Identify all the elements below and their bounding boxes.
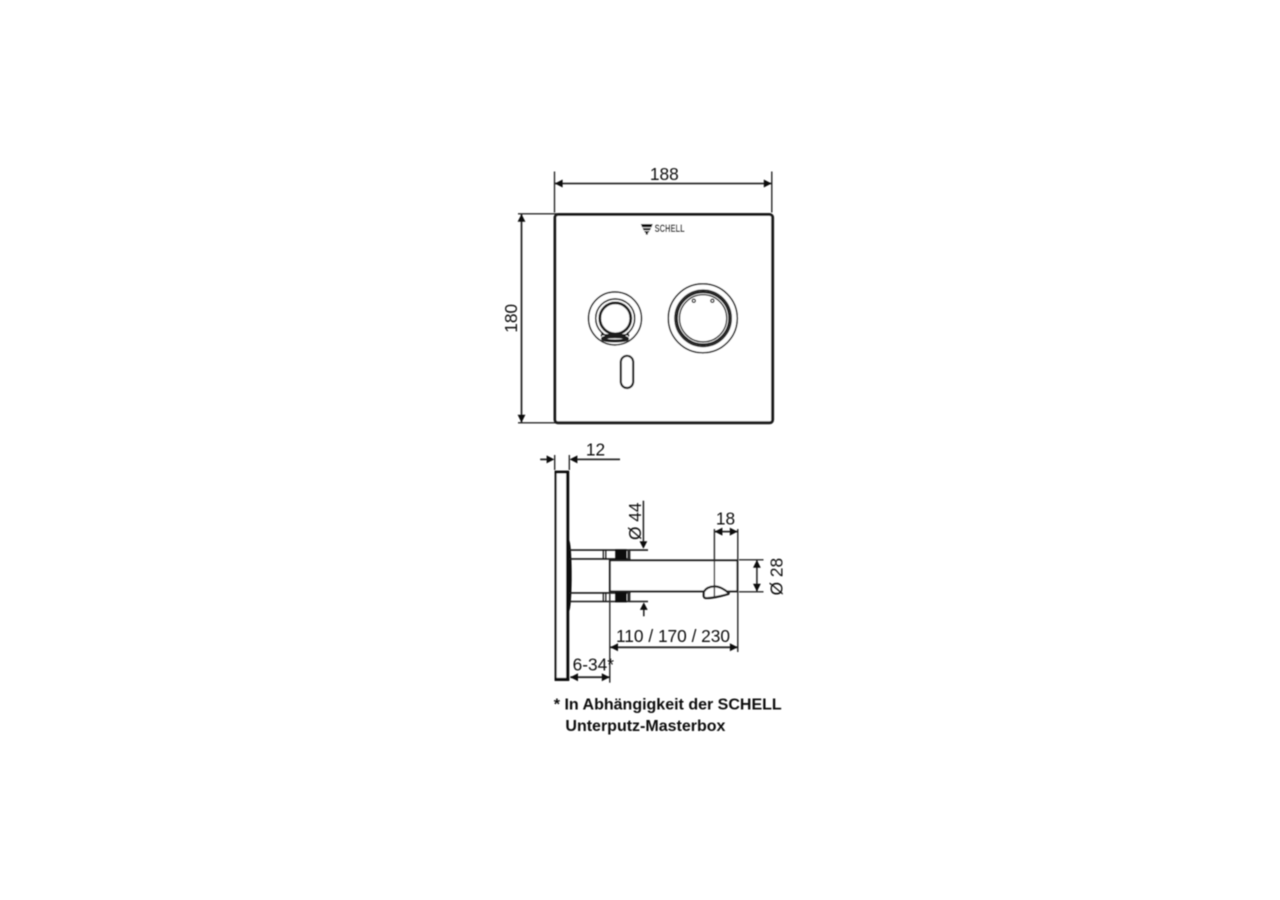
svg-text:110 / 170 / 230: 110 / 170 / 230 (616, 626, 730, 646)
svg-text:Ø 28: Ø 28 (767, 558, 787, 595)
svg-text:18: 18 (716, 508, 735, 528)
svg-text:188: 188 (650, 164, 679, 184)
svg-text:Ø 44: Ø 44 (625, 502, 645, 540)
svg-text:180: 180 (501, 304, 521, 333)
svg-text:* In Abhängigkeit der SCHELL: * In Abhängigkeit der SCHELL (554, 697, 782, 714)
svg-text:Unterputz-Masterbox: Unterputz-Masterbox (565, 718, 725, 735)
svg-text:SCHELL: SCHELL (655, 223, 685, 235)
svg-text:12: 12 (586, 440, 605, 460)
svg-text:6-34*: 6-34* (573, 654, 615, 674)
